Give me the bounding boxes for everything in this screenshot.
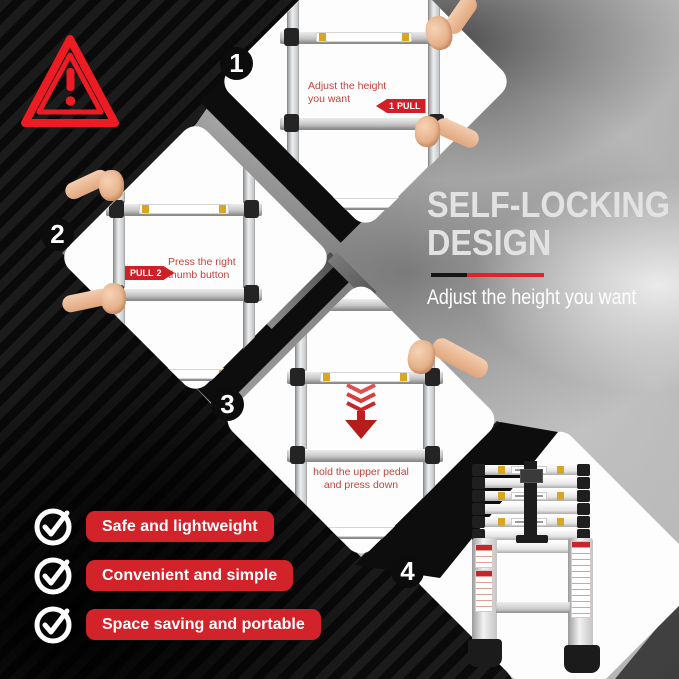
rung-cap: [472, 490, 485, 502]
ladder-foot: [468, 639, 502, 667]
rung-cap: [577, 464, 590, 476]
ladder-foot: [564, 645, 600, 673]
feature-pill: Space saving and portable: [86, 609, 321, 640]
feature-pill: Convenient and simple: [86, 560, 293, 591]
pull-2-number: 2: [157, 266, 162, 280]
headline-line2: DESIGN: [427, 224, 670, 262]
strap-base: [516, 535, 548, 543]
rail-clamp: [284, 28, 299, 46]
rung-warning-label: [321, 373, 408, 381]
label-chip: [557, 492, 564, 500]
step-4-number: 4: [400, 556, 414, 587]
label-chip: [498, 466, 505, 474]
pull-2-word: PULL: [130, 266, 154, 280]
headline-subtitle: Adjust the height you want: [427, 286, 656, 310]
hand-photo-cutout: [101, 283, 126, 314]
headline-line1: SELF-LOCKING: [427, 186, 670, 224]
step-2-number-badge: 2: [41, 218, 74, 251]
label-chip: [498, 492, 505, 500]
step-1-number: 1: [229, 48, 243, 79]
label-chip: [498, 518, 505, 526]
step-2-caption-line1: Press the right: [168, 256, 236, 269]
label-chip: [557, 466, 564, 474]
step-3-number-badge: 3: [211, 388, 244, 421]
step-2-caption-line2: thumb button: [168, 269, 236, 282]
step-1-caption: Adjust the height you want: [308, 80, 386, 106]
warning-sticker: [476, 571, 492, 611]
ladder-rung: [106, 203, 262, 216]
stabilizer-crossbar: [496, 602, 570, 613]
infographic-canvas: Adjust the height you want 1 PULL Press …: [0, 0, 679, 679]
label-chip: [557, 518, 564, 526]
pull-1-number: 1: [389, 99, 394, 113]
warning-sticker: [572, 542, 590, 617]
rail-clamp: [244, 285, 259, 303]
rung-cap: [472, 516, 485, 528]
pull-1-word: PULL: [397, 99, 421, 113]
feature-row: Safe and lightweight: [32, 505, 274, 547]
rung-cap: [472, 464, 485, 476]
ladder-rung: [106, 288, 262, 301]
rail-clamp: [284, 114, 299, 132]
rung-warning-label: [317, 33, 411, 41]
hand-photo-cutout: [99, 170, 124, 201]
step-1-number-badge: 1: [220, 47, 253, 80]
rail-clamp: [290, 368, 305, 386]
check-icon: [32, 603, 74, 645]
feature-pill: Safe and lightweight: [86, 511, 274, 542]
feature-row: Convenient and simple: [32, 554, 293, 596]
headline-block: SELF-LOCKING DESIGN Adjust the height yo…: [427, 186, 679, 310]
down-arrow-icon: [342, 383, 380, 441]
step-3-number: 3: [220, 389, 234, 420]
rail-clamp: [290, 446, 305, 464]
rung-cap: [577, 503, 590, 515]
warning-sticker: [476, 545, 492, 567]
ladder-rung: [287, 449, 443, 462]
step-4-ladder-illustration: [454, 439, 666, 679]
strap-buckle: [520, 469, 543, 483]
step-2-caption: Press the right thumb button: [168, 256, 236, 282]
check-icon: [32, 505, 74, 547]
step-2-number: 2: [50, 219, 64, 250]
rung-cap: [577, 477, 590, 489]
rail-clamp: [425, 446, 440, 464]
feature-row: Space saving and portable: [32, 603, 321, 645]
rail-clamp: [244, 200, 259, 218]
headline-underline: [431, 273, 544, 277]
rung-cap: [472, 503, 485, 515]
rung-warning-label: [140, 205, 227, 213]
step-4-number-badge: 4: [391, 555, 424, 588]
underline-red-segment: [467, 273, 544, 277]
ladder-rung: [280, 31, 448, 44]
check-icon: [32, 554, 74, 596]
rung-cap: [577, 516, 590, 528]
warning-triangle-icon: [18, 32, 122, 134]
step-1-caption-line2: you want: [308, 93, 386, 106]
step-1-caption-line1: Adjust the height: [308, 80, 386, 93]
rung-cap: [577, 490, 590, 502]
underline-black-segment: [431, 273, 467, 277]
rung-cap: [472, 477, 485, 489]
step-3-caption-line1: hold the upper pedal: [251, 466, 471, 479]
